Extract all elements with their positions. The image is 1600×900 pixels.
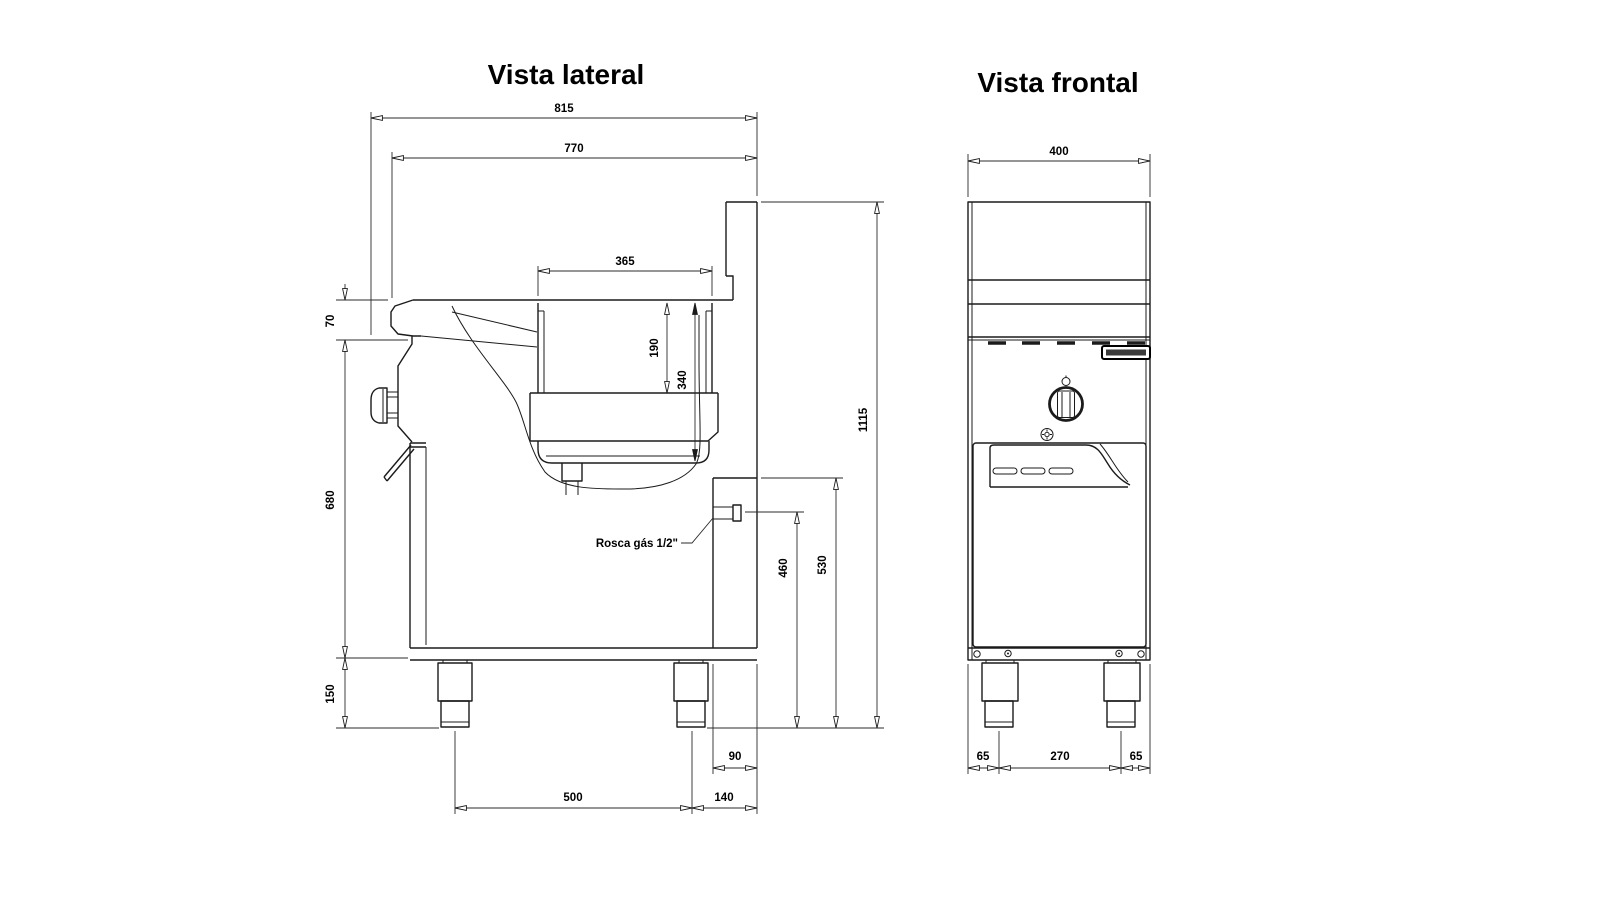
worktop-side	[391, 300, 733, 347]
dim-460: 460	[778, 558, 790, 577]
gas-thread-label: Rosca gás 1/2"	[596, 538, 678, 550]
legs-front	[980, 660, 1142, 727]
bottom-tray-side	[538, 441, 709, 495]
side-view-title: Vista lateral	[488, 59, 645, 90]
control-knob	[1050, 376, 1083, 421]
cabinet-base-side	[410, 648, 757, 660]
knob-side	[371, 388, 398, 423]
legs-side	[436, 660, 710, 727]
dim-90: 90	[729, 751, 742, 763]
dim-190: 190	[649, 338, 661, 357]
door-side	[410, 443, 426, 648]
dim-530: 530	[817, 555, 829, 574]
side-view-body	[371, 202, 757, 727]
base-band-front	[968, 648, 1150, 657]
gas-fitting	[713, 505, 741, 521]
dim-365: 365	[615, 256, 635, 268]
control-panel-side	[398, 336, 412, 442]
dim-340: 340	[677, 370, 689, 389]
brand-label	[1102, 346, 1150, 359]
side-view: Vista lateral	[325, 59, 884, 814]
drawing-svg: Vista lateral	[0, 0, 1600, 900]
dim-70: 70	[325, 315, 337, 328]
backsplash-side	[726, 202, 757, 648]
dim-65-right: 65	[1130, 751, 1143, 763]
dim-270: 270	[1050, 751, 1069, 763]
pilot-screw	[1041, 429, 1053, 441]
burner-housing-side	[530, 393, 718, 441]
door-front	[973, 443, 1146, 647]
gas-channel-side	[713, 478, 757, 648]
front-view: Vista frontal	[968, 67, 1150, 774]
front-view-dims	[968, 154, 1150, 774]
cutaway-curve	[452, 306, 700, 489]
dim-400: 400	[1049, 146, 1068, 158]
dim-500: 500	[563, 792, 582, 804]
dim-150: 150	[325, 684, 337, 703]
cabinet-front-outline	[968, 202, 1150, 660]
front-view-body	[968, 202, 1150, 727]
dim-1115: 1115	[858, 407, 870, 432]
dim-140: 140	[714, 792, 733, 804]
dim-770: 770	[564, 143, 583, 155]
dim-815: 815	[554, 103, 574, 115]
dim-680: 680	[325, 490, 337, 509]
front-seams	[968, 280, 1150, 337]
dim-65-left: 65	[977, 751, 990, 763]
technical-drawing-page: Vista lateral	[0, 0, 1600, 900]
door-handle-recess	[990, 445, 1130, 487]
front-view-title: Vista frontal	[977, 67, 1138, 98]
